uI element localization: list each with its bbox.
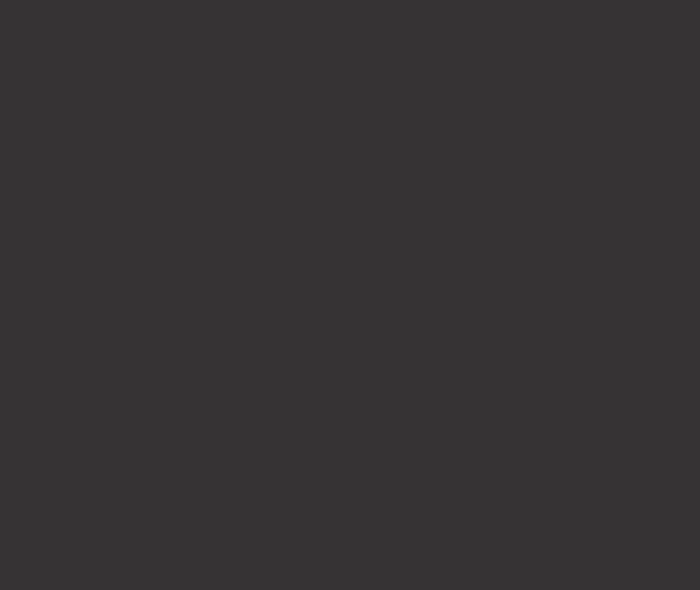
- blank-screen: [0, 0, 700, 590]
